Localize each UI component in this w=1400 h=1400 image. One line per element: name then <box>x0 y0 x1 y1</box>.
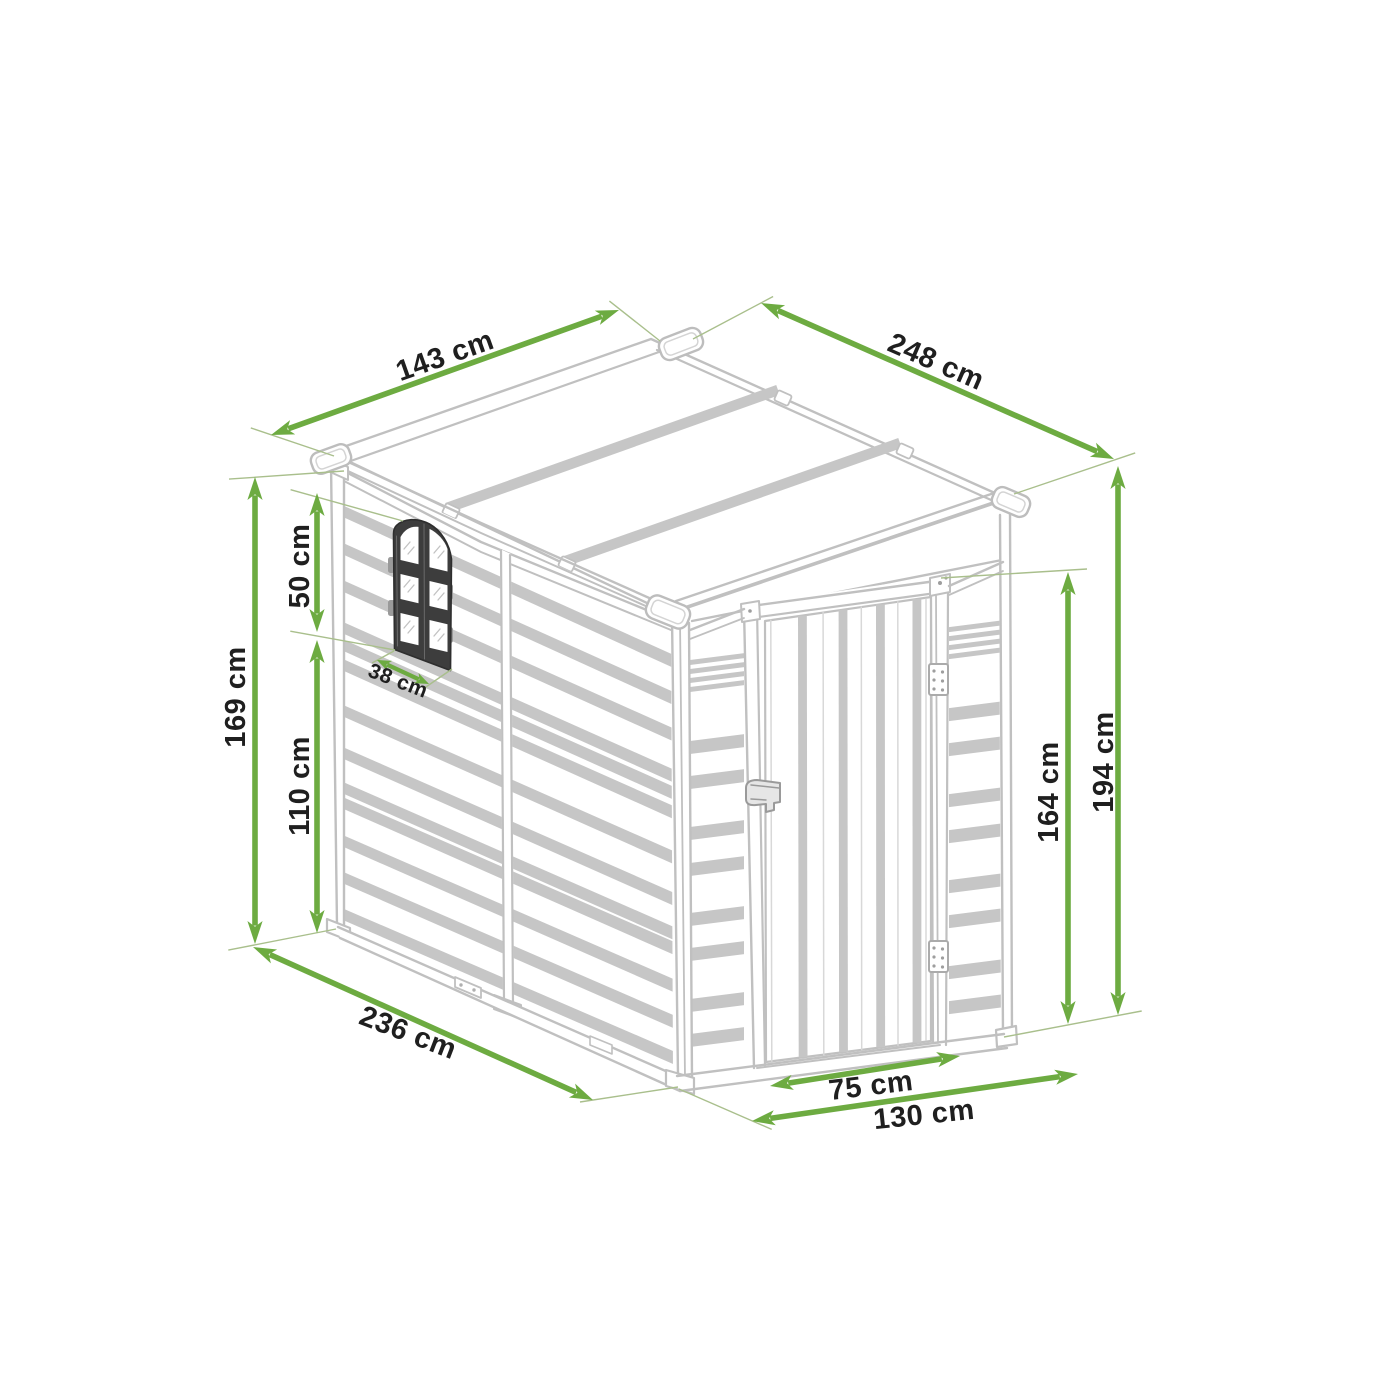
svg-text:50 cm: 50 cm <box>284 524 316 609</box>
svg-text:164 cm: 164 cm <box>1033 741 1065 842</box>
svg-text:169 cm: 169 cm <box>220 646 252 747</box>
svg-text:194 cm: 194 cm <box>1088 711 1120 812</box>
svg-text:110 cm: 110 cm <box>284 736 316 836</box>
